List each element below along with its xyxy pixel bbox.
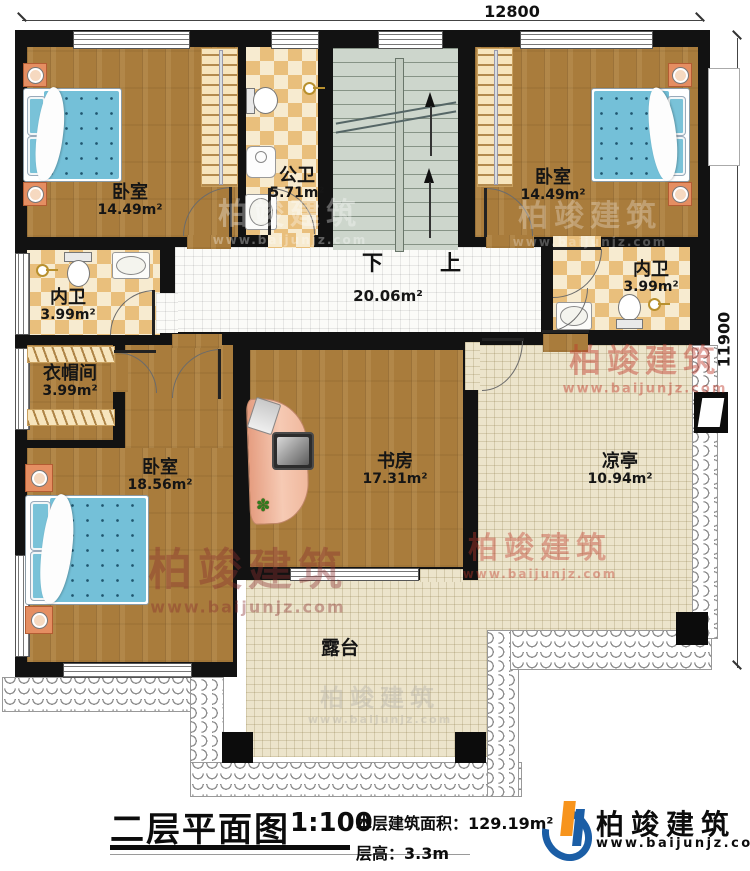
window bbox=[520, 31, 653, 49]
shower-head-icon bbox=[303, 82, 316, 95]
window bbox=[63, 663, 192, 678]
door-leaf bbox=[542, 330, 589, 333]
floor-area-label: 本层建筑面积： bbox=[356, 814, 468, 833]
door-leaf bbox=[218, 349, 221, 399]
room-label-bath-right: 内卫 3.99m² bbox=[623, 260, 678, 296]
floor-area-text: 本层建筑面积：129.19m² bbox=[356, 810, 553, 834]
room-label-bedroom-tr: 卧室 14.49m² bbox=[520, 168, 585, 204]
title-underline bbox=[110, 845, 350, 850]
window bbox=[271, 31, 319, 49]
door-leaf bbox=[484, 188, 487, 237]
stair-arrow-stem bbox=[430, 106, 432, 156]
window bbox=[290, 568, 419, 581]
doorway bbox=[486, 235, 534, 248]
floor-plan-canvas: 12800 11900 bbox=[0, 0, 750, 866]
column bbox=[694, 392, 728, 433]
room-label-bedroom-bl: 卧室 18.56m² bbox=[127, 458, 192, 494]
window bbox=[73, 31, 190, 49]
doorway bbox=[420, 569, 463, 582]
brand-logo-icon bbox=[543, 800, 591, 854]
doorway bbox=[268, 233, 314, 248]
dimension-line-top bbox=[22, 20, 702, 21]
clothes-rack-icon bbox=[27, 346, 115, 363]
floor-height-value: 3.3m bbox=[404, 844, 449, 863]
nightstand-icon bbox=[23, 182, 47, 206]
door-leaf bbox=[114, 350, 156, 353]
doorway bbox=[156, 293, 178, 333]
stair-arrow-icon bbox=[425, 92, 435, 107]
room-label-terrace: 露台 bbox=[321, 638, 359, 659]
room-label-hall-area: 20.06m² bbox=[353, 288, 423, 305]
floor-height-text: 层高：3.3m bbox=[356, 840, 449, 864]
door-leaf bbox=[229, 187, 232, 237]
doorway bbox=[187, 235, 231, 249]
doorway bbox=[543, 334, 588, 352]
door-leaf bbox=[482, 338, 524, 341]
roof-eave-band bbox=[190, 762, 522, 797]
stair-arrow-icon bbox=[424, 168, 434, 183]
column bbox=[222, 732, 253, 763]
plant-icon: ✽ bbox=[256, 496, 270, 516]
wardrobe-icon bbox=[477, 48, 513, 187]
room-label-bedroom-tl: 卧室 14.49m² bbox=[97, 183, 162, 219]
window bbox=[378, 31, 443, 49]
room-label-bath-left: 内卫 3.99m² bbox=[40, 288, 95, 324]
room-label-cloakroom: 衣帽间 3.99m² bbox=[42, 364, 97, 400]
room-terrace-floor bbox=[246, 580, 487, 757]
room-label-public-bath: 公卫 5.71m² bbox=[269, 166, 324, 202]
bed-icon bbox=[25, 495, 149, 605]
plan-title: 二层平面图 bbox=[110, 802, 290, 851]
nightstand-icon bbox=[23, 63, 47, 87]
nightstand-icon bbox=[668, 182, 692, 206]
wardrobe-icon bbox=[201, 48, 238, 187]
shower-head-icon bbox=[648, 298, 661, 311]
stair-rail bbox=[395, 58, 404, 252]
doorway bbox=[172, 334, 222, 348]
roof-eave-band bbox=[692, 345, 718, 639]
shower-head-icon bbox=[36, 264, 49, 277]
stair-arrow-stem bbox=[429, 182, 431, 238]
stair-direction-down: 下 bbox=[362, 247, 383, 277]
nightstand-icon bbox=[25, 606, 53, 634]
floor-height-label: 层高： bbox=[356, 844, 404, 863]
nightstand-icon bbox=[668, 63, 692, 87]
bed-icon bbox=[591, 88, 690, 182]
doorway bbox=[465, 342, 480, 390]
sink-icon bbox=[112, 252, 150, 279]
stair-direction-up: 上 bbox=[440, 247, 461, 277]
exterior-ledge bbox=[708, 68, 740, 166]
door-leaf bbox=[152, 290, 155, 335]
room-label-study: 书房 17.31m² bbox=[362, 452, 427, 488]
column bbox=[455, 732, 486, 763]
bed-icon bbox=[23, 88, 122, 182]
dimension-top-value: 12800 bbox=[452, 2, 572, 21]
room-label-pavilion: 凉亭 10.94m² bbox=[587, 452, 652, 488]
column bbox=[676, 612, 708, 645]
window bbox=[15, 253, 30, 335]
brand-url: www.baijunjz.com bbox=[596, 836, 750, 851]
door-leaf bbox=[553, 247, 601, 250]
clothes-rack-icon bbox=[27, 409, 115, 426]
office-chair-icon bbox=[272, 432, 314, 470]
nightstand-icon bbox=[25, 464, 53, 492]
